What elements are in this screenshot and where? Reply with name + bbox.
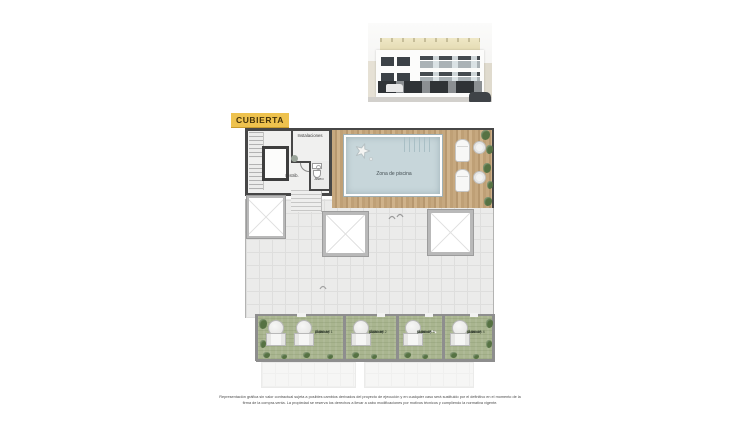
distributor-label: Distrib.: [280, 173, 304, 178]
door-opening: [297, 313, 306, 317]
toilet-room-label: Aseo: [310, 176, 328, 181]
installations-label: Instalaciones: [292, 133, 328, 138]
birds-icon: [388, 212, 406, 222]
building-render-photo: [368, 23, 492, 102]
wall: [256, 359, 495, 362]
building-facade: [376, 50, 484, 97]
sun-lounger: [455, 169, 470, 192]
parked-car-dark: [469, 92, 491, 102]
divider-wall: [442, 314, 445, 361]
pool-steps: [404, 137, 434, 152]
sink-icon: [312, 163, 322, 169]
side-table: [473, 141, 486, 154]
parked-car: [386, 84, 403, 92]
pool-ball-icon: [369, 157, 373, 161]
sun-lounger: [455, 139, 470, 162]
door-opening: [425, 313, 433, 317]
pool-zone-label: Zona de piscina: [352, 172, 436, 177]
wall: [255, 314, 495, 316]
solarium-area: 21,50 m²: [315, 330, 330, 335]
divider-wall: [396, 314, 399, 361]
window: [397, 57, 410, 66]
skylight: [428, 210, 473, 255]
exterior-steps: [291, 190, 322, 212]
door-opening: [470, 313, 478, 317]
stairwell-skylight: [247, 196, 285, 238]
sun-lounger: [401, 320, 425, 350]
sun-lounger: [448, 320, 472, 350]
skylight: [323, 212, 368, 256]
sun-lounger: [292, 320, 316, 350]
door-opening: [377, 313, 385, 317]
glass-balcony: [420, 55, 480, 68]
solarium-area: 11,90 m²: [417, 330, 431, 335]
sun-lounger: [349, 320, 373, 350]
lower-floor-outline: [364, 362, 474, 388]
bird-icon: [318, 283, 332, 291]
page-canvas: CUBIERTA Zona de piscina Instalaciones D…: [0, 0, 740, 445]
wall: [255, 314, 258, 361]
plant-icon: [291, 155, 298, 162]
floor-title-badge: CUBIERTA: [231, 113, 289, 128]
side-table: [473, 171, 486, 184]
window: [381, 57, 394, 66]
divider-wall: [343, 314, 346, 361]
sun-lounger: [264, 320, 288, 350]
solarium-area: 11,80 m²: [467, 330, 481, 335]
solarium-area: 13,70 m²: [369, 330, 384, 335]
legal-disclaimer: Representación gráfica sin valor contrac…: [217, 395, 523, 406]
lower-floor-outline: [261, 362, 356, 388]
